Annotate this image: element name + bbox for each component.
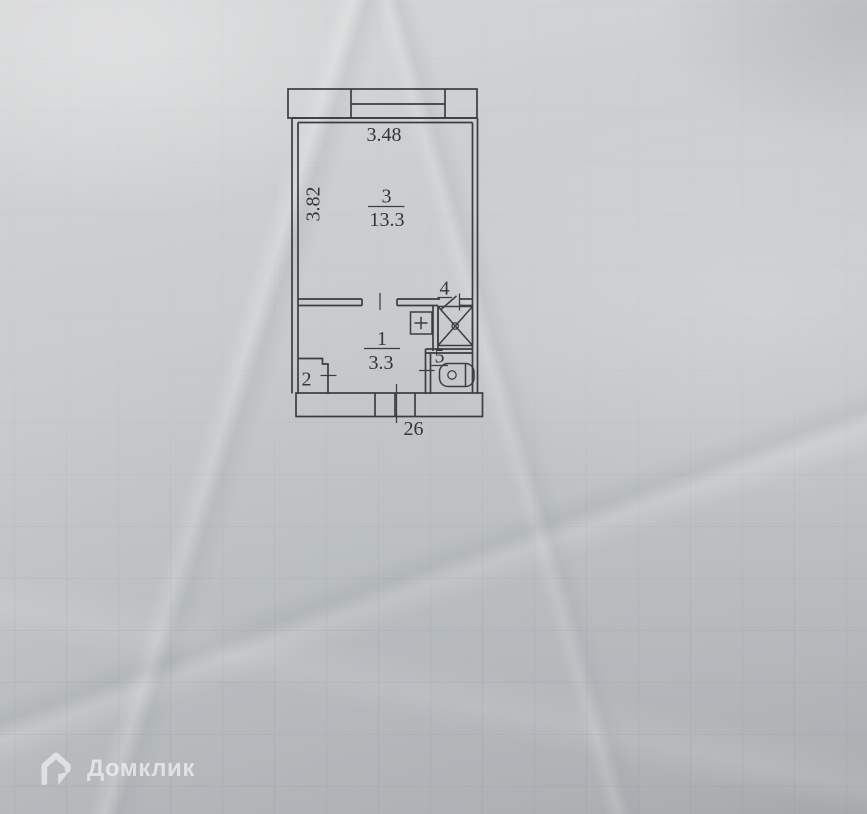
room-shower-number: 4: [440, 278, 450, 300]
shower-cabin-symbol: [438, 307, 473, 346]
entrance-wall: [296, 384, 483, 423]
room-closet-number: 2: [302, 369, 312, 391]
floorplan-drawing: 3.48 3.82 3 13.3 1 3.3 2 4 5 26: [0, 0, 867, 814]
balcony-outline: [288, 89, 477, 118]
dimension-top-label: 3.48: [367, 124, 402, 146]
toilet-symbol: [440, 364, 475, 387]
room-hall-number: 1: [377, 328, 387, 350]
room-living-number: 3: [382, 186, 392, 208]
stove-symbol: [411, 312, 433, 334]
room-wc-number: 5: [435, 346, 445, 368]
room-hall-area: 3.3: [369, 352, 394, 374]
room-living-area: 13.3: [370, 209, 405, 231]
floorplan-photo: 3.48 3.82 3 13.3 1 3.3 2 4 5 26 Домклик: [0, 0, 867, 814]
dimension-left-label: 3.82: [303, 187, 325, 222]
apartment-number-label: 26: [404, 418, 424, 440]
